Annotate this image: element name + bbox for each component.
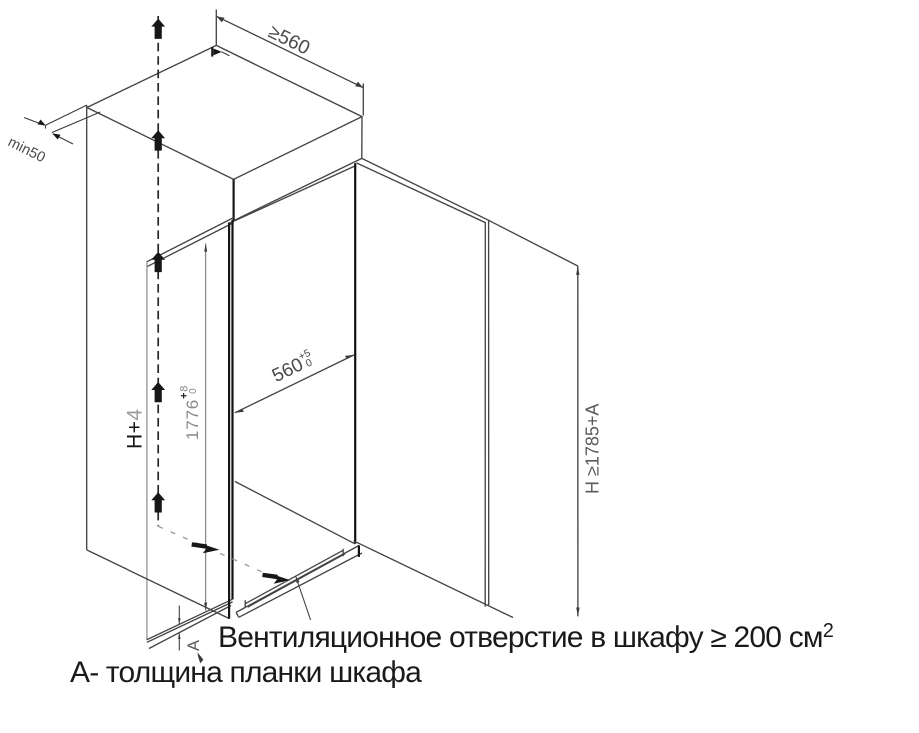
svg-text:А- толщина планки шкафа: А- толщина планки шкафа	[70, 656, 422, 689]
svg-text:560+50: 560+50	[268, 347, 318, 387]
svg-text:≥560: ≥560	[265, 21, 314, 60]
svg-text:1776+80: 1776+80	[179, 385, 203, 440]
svg-text:H+4: H+4	[124, 408, 147, 449]
svg-text:А: А	[185, 640, 203, 651]
svg-text:H ≥1785+A: H ≥1785+A	[583, 404, 603, 494]
svg-text:Вентиляционное отверстие в шка: Вентиляционное отверстие в шкафу ≥ 200 с…	[218, 620, 834, 654]
svg-text:min50: min50	[5, 134, 47, 166]
